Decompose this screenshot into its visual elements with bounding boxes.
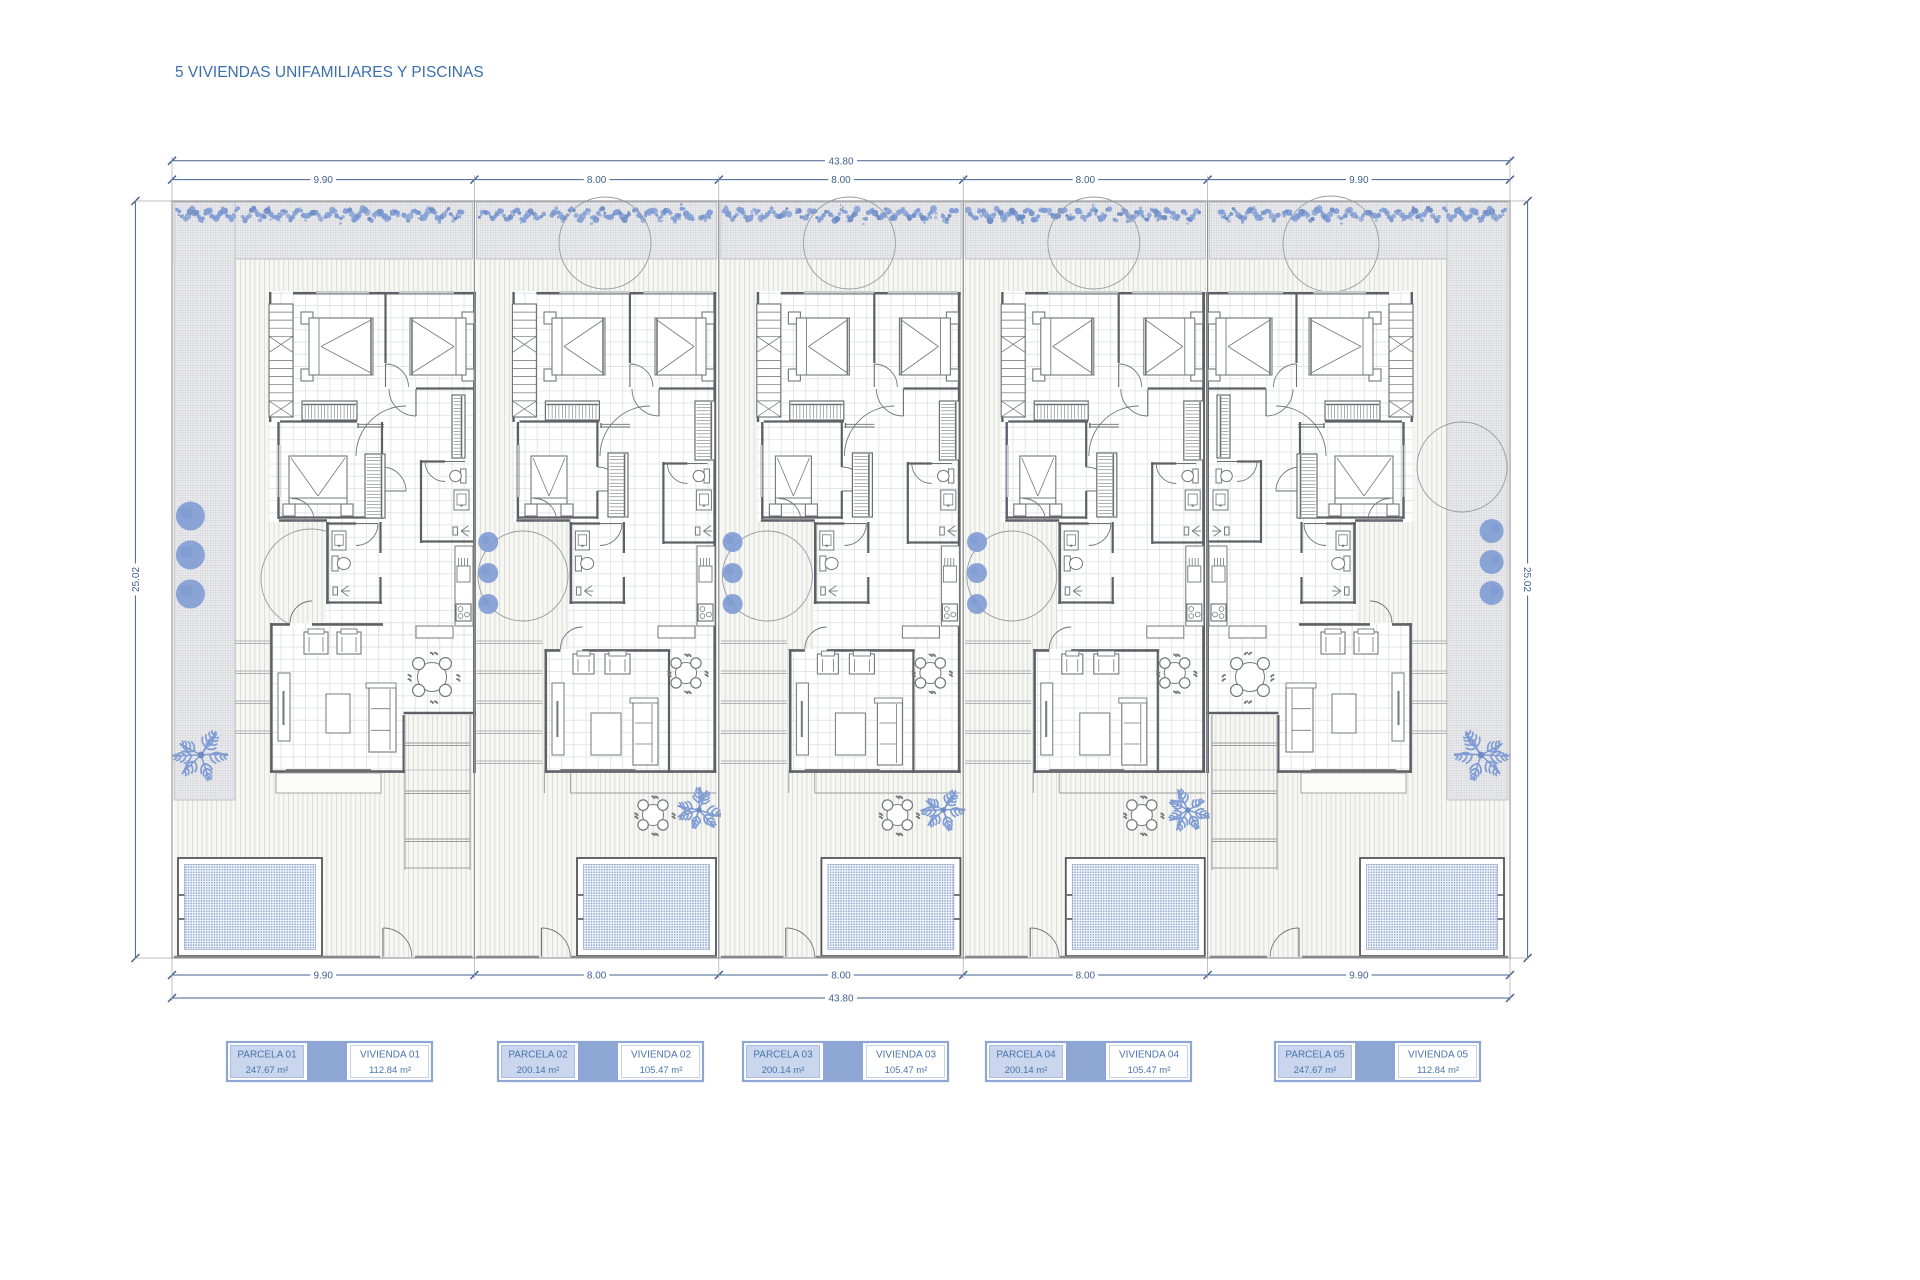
svg-text:43.80: 43.80 (828, 156, 853, 167)
svg-text:VIVIENDA 04: VIVIENDA 04 (1119, 1050, 1179, 1061)
svg-text:112.84 m²: 112.84 m² (1417, 1065, 1459, 1076)
svg-text:200.14 m²: 200.14 m² (517, 1065, 560, 1076)
svg-text:PARCELA 05: PARCELA 05 (1285, 1050, 1345, 1061)
svg-text:8.00: 8.00 (1076, 971, 1096, 982)
svg-text:PARCELA 02: PARCELA 02 (508, 1050, 568, 1061)
svg-text:105.47 m²: 105.47 m² (640, 1065, 683, 1076)
svg-text:9.90: 9.90 (313, 175, 333, 186)
svg-text:VIVIENDA 03: VIVIENDA 03 (876, 1050, 936, 1061)
svg-text:112.84 m²: 112.84 m² (369, 1065, 411, 1076)
svg-text:8.00: 8.00 (831, 971, 851, 982)
svg-text:8.00: 8.00 (831, 175, 851, 186)
svg-text:PARCELA 04: PARCELA 04 (996, 1050, 1056, 1061)
svg-text:105.47 m²: 105.47 m² (1128, 1065, 1171, 1076)
svg-text:200.14 m²: 200.14 m² (762, 1065, 805, 1076)
svg-text:247.67 m²: 247.67 m² (1294, 1065, 1337, 1076)
svg-text:8.00: 8.00 (1076, 175, 1096, 186)
svg-text:105.47 m²: 105.47 m² (885, 1065, 928, 1076)
svg-text:5 VIVIENDAS UNIFAMILIARES Y PI: 5 VIVIENDAS UNIFAMILIARES Y PISCINAS (175, 64, 484, 81)
svg-text:25.02: 25.02 (1521, 567, 1532, 592)
svg-text:PARCELA 01: PARCELA 01 (237, 1050, 297, 1061)
svg-text:PARCELA 03: PARCELA 03 (753, 1050, 813, 1061)
svg-text:8.00: 8.00 (587, 175, 607, 186)
svg-text:43.80: 43.80 (828, 994, 853, 1005)
svg-text:VIVIENDA 02: VIVIENDA 02 (631, 1050, 691, 1061)
svg-text:9.90: 9.90 (313, 971, 333, 982)
svg-text:25.02: 25.02 (131, 567, 142, 592)
svg-text:VIVIENDA 05: VIVIENDA 05 (1408, 1050, 1468, 1061)
svg-text:247.67 m²: 247.67 m² (246, 1065, 289, 1076)
svg-text:9.90: 9.90 (1349, 175, 1369, 186)
svg-text:8.00: 8.00 (587, 971, 607, 982)
svg-text:200.14 m²: 200.14 m² (1005, 1065, 1048, 1076)
svg-text:VIVIENDA 01: VIVIENDA 01 (360, 1050, 420, 1061)
svg-text:9.90: 9.90 (1349, 971, 1369, 982)
